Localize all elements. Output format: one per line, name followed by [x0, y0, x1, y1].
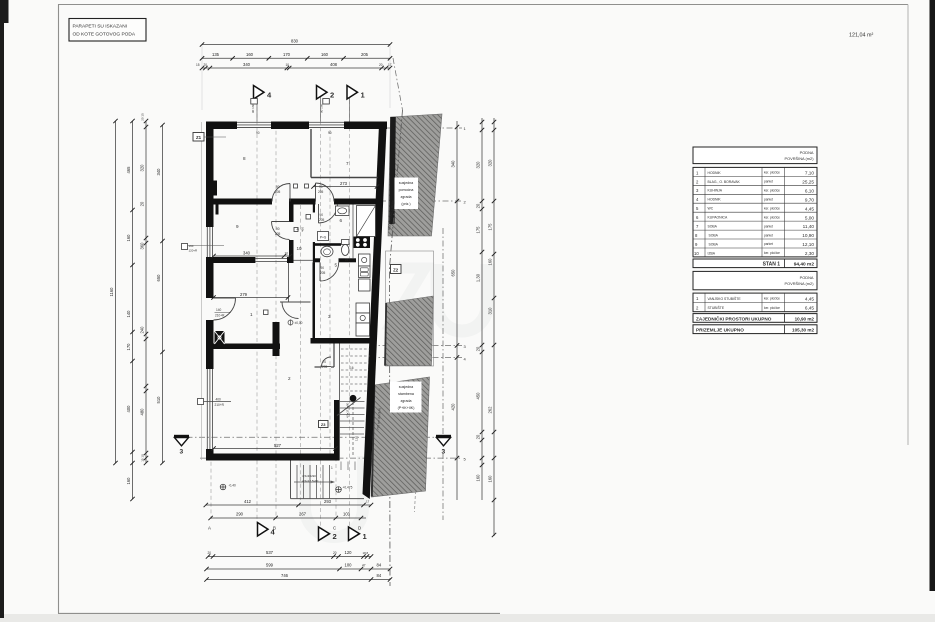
svg-text:(priz.): (priz.): [401, 202, 410, 206]
svg-text:273: 273: [340, 181, 348, 186]
svg-text:175: 175: [476, 226, 481, 234]
svg-text:320: 320: [488, 159, 493, 167]
svg-text:830: 830: [291, 39, 299, 44]
svg-text:Z1: Z1: [196, 135, 202, 140]
svg-text:160: 160: [246, 52, 254, 57]
svg-text:1: 1: [250, 312, 253, 317]
svg-text:4,5x17,5x90: 4,5x17,5x90: [302, 479, 319, 483]
svg-text:4,45: 4,45: [805, 296, 815, 301]
svg-text:PRIZEMLJE UKUPNO: PRIZEMLJE UKUPNO: [696, 328, 744, 333]
svg-text:240: 240: [140, 326, 145, 334]
svg-text:100: 100: [345, 563, 353, 568]
svg-text:650: 650: [451, 269, 456, 277]
svg-text:3: 3: [180, 449, 184, 456]
svg-text:599: 599: [266, 563, 274, 568]
svg-text:POVRŠINA (m2): POVRŠINA (m2): [785, 156, 815, 161]
svg-text:650: 650: [156, 274, 161, 282]
svg-text:20: 20: [476, 203, 481, 208]
svg-text:90: 90: [276, 185, 280, 189]
svg-text:20: 20: [208, 551, 212, 555]
svg-text:3: 3: [442, 449, 446, 456]
svg-text:1,30: 1,30: [476, 273, 481, 282]
svg-text:205: 205: [318, 190, 324, 194]
svg-text:SOBA: SOBA: [709, 234, 719, 238]
svg-text:290: 290: [236, 512, 244, 517]
svg-text:12,10: 12,10: [802, 242, 814, 247]
svg-text:205: 205: [320, 271, 326, 275]
svg-text:420: 420: [451, 403, 456, 411]
svg-text:746: 746: [281, 573, 289, 578]
svg-text:11,40: 11,40: [803, 224, 815, 229]
svg-text:C: C: [333, 526, 336, 531]
svg-text:121,04 m²: 121,04 m²: [849, 33, 873, 39]
svg-text:90 160: 90 160: [251, 103, 255, 113]
svg-text:10,90: 10,90: [802, 233, 814, 238]
svg-text:1: 1: [331, 466, 333, 470]
svg-text:94,40 m2: 94,40 m2: [794, 262, 815, 268]
svg-text:537: 537: [266, 550, 274, 555]
svg-text:SOBA: SOBA: [708, 225, 718, 229]
svg-text:STAN 1: STAN 1: [763, 262, 781, 268]
svg-text:SOBA: SOBA: [709, 242, 719, 246]
svg-text:BLAG., O. BORAVAK: BLAG., O. BORAVAK: [708, 180, 741, 184]
svg-text:PODNA: PODNA: [800, 150, 814, 155]
svg-text:90: 90: [320, 213, 324, 217]
svg-text:293: 293: [324, 499, 332, 504]
svg-text:310: 310: [488, 307, 493, 315]
svg-text:205: 205: [322, 365, 328, 369]
svg-text:zgrada: zgrada: [401, 195, 412, 199]
svg-text:VANJSKO STUBIŠTE: VANJSKO STUBIŠTE: [708, 296, 742, 301]
svg-text:20: 20: [140, 201, 145, 206]
svg-text:340: 340: [156, 168, 161, 176]
svg-text:PARAPETI SU ISKAZANI: PARAPETI SU ISKAZANI: [73, 24, 128, 30]
svg-text:parket: parket: [764, 224, 773, 228]
svg-text:±0,00: ±0,00: [295, 321, 303, 325]
svg-text:KUPAONICA: KUPAONICA: [708, 216, 728, 220]
svg-text:160: 160: [189, 244, 194, 248]
svg-text:4: 4: [297, 227, 300, 232]
svg-text:WC: WC: [708, 207, 714, 211]
svg-text:320: 320: [140, 164, 145, 172]
svg-text:9,70: 9,70: [805, 197, 815, 202]
svg-text:90: 90: [256, 131, 260, 135]
svg-text:160: 160: [488, 475, 493, 483]
svg-text:400: 400: [126, 405, 131, 413]
svg-text:408: 408: [330, 62, 338, 67]
svg-text:103: 103: [343, 512, 351, 517]
svg-text:17: 17: [366, 500, 370, 504]
svg-text:D: D: [358, 526, 361, 531]
svg-text:279: 279: [240, 292, 248, 297]
svg-text:IZBA: IZBA: [708, 251, 716, 255]
svg-text:zgrada: zgrada: [401, 399, 412, 403]
svg-text:6: 6: [340, 218, 343, 223]
svg-text:20 15: 20 15: [141, 113, 145, 121]
svg-text:(P+IK+IIK): (P+IK+IIK): [398, 406, 415, 410]
svg-text:-0,40: -0,40: [229, 484, 236, 488]
svg-text:20: 20: [476, 346, 481, 351]
svg-text:ker. pločice: ker. pločice: [764, 215, 780, 219]
svg-text:parket: parket: [764, 198, 773, 202]
svg-text:POVRŠINA (m2): POVRŠINA (m2): [785, 281, 815, 286]
svg-text:205: 205: [275, 232, 281, 236]
svg-text:205: 205: [319, 218, 325, 222]
svg-text:160: 160: [321, 52, 329, 57]
svg-text:257: 257: [345, 258, 350, 262]
svg-text:5,00: 5,00: [805, 215, 815, 220]
svg-text:412: 412: [244, 499, 252, 504]
svg-text:160: 160: [126, 234, 131, 242]
svg-text:105,30 m2: 105,30 m2: [792, 328, 814, 333]
svg-text:170: 170: [126, 343, 131, 351]
svg-text:parket: parket: [764, 180, 773, 184]
svg-text:OD KOTE GOTOVOG PODA: OD KOTE GOTOVOG PODA: [73, 32, 136, 38]
svg-text:20: 20: [379, 63, 383, 67]
svg-text:20: 20: [333, 551, 337, 555]
svg-text:10: 10: [286, 63, 290, 67]
svg-text:7,10: 7,10: [805, 171, 815, 176]
svg-text:ker. pločice: ker. pločice: [764, 171, 780, 175]
svg-text:ker. pločice: ker. pločice: [764, 306, 780, 310]
svg-text:340: 340: [243, 62, 251, 67]
svg-text:10: 10: [694, 251, 699, 256]
svg-text:HODNIK: HODNIK: [708, 171, 722, 175]
svg-text:262: 262: [488, 406, 493, 414]
svg-text:47: 47: [362, 564, 366, 568]
svg-text:210+R: 210+R: [215, 403, 225, 407]
svg-text:ZAJEDNIČKI PROSTORI UKUPNO: ZAJEDNIČKI PROSTORI UKUPNO: [696, 315, 772, 321]
svg-text:HODNIK: HODNIK: [708, 198, 722, 202]
svg-text:480: 480: [140, 408, 145, 416]
svg-text:4,5x30x90: 4,5x30x90: [302, 474, 316, 478]
svg-text:70: 70: [323, 360, 327, 364]
svg-text:4,45: 4,45: [805, 206, 815, 211]
svg-text:205: 205: [361, 52, 369, 57]
svg-text:90: 90: [319, 185, 323, 189]
svg-text:susjedna: susjedna: [399, 181, 413, 185]
svg-text:10: 10: [297, 246, 303, 251]
svg-text:9: 9: [236, 224, 239, 229]
svg-text:20: 20: [476, 434, 481, 439]
svg-text:ker. pločice: ker. pločice: [764, 206, 780, 210]
svg-text:16: 16: [350, 366, 354, 370]
svg-text:320: 320: [476, 161, 481, 169]
svg-text:120: 120: [355, 436, 359, 441]
svg-text:stambena: stambena: [398, 392, 414, 396]
svg-text:A: A: [208, 526, 211, 531]
svg-text:135: 135: [212, 52, 220, 57]
svg-text:340: 340: [451, 160, 456, 168]
svg-text:pomoćna: pomoćna: [399, 188, 414, 192]
svg-text:527: 527: [274, 443, 282, 448]
svg-text:6,45: 6,45: [805, 306, 815, 311]
svg-text:460: 460: [301, 227, 305, 232]
svg-text:17: 17: [388, 63, 392, 67]
svg-text:ker. pločice: ker. pločice: [764, 251, 780, 255]
svg-text:6,10: 6,10: [805, 188, 815, 193]
svg-text:2,30: 2,30: [805, 251, 815, 256]
svg-text:ker. pločice: ker. pločice: [764, 189, 780, 193]
svg-text:160: 160: [488, 258, 493, 266]
svg-text:KUHINJA: KUHINJA: [708, 189, 723, 193]
svg-text:4,5x17,5x90: 4,5x17,5x90: [346, 402, 350, 418]
svg-text:Z2: Z2: [393, 268, 399, 273]
svg-text:160: 160: [476, 474, 481, 482]
svg-text:STUBIŠTE: STUBIŠTE: [708, 305, 725, 310]
svg-text:510: 510: [156, 396, 161, 404]
svg-text:25,25: 25,25: [802, 180, 814, 185]
svg-text:PODNA: PODNA: [800, 275, 814, 280]
svg-text:340: 340: [243, 250, 251, 255]
svg-text:20: 20: [204, 63, 208, 67]
svg-text:susjedna: susjedna: [399, 385, 413, 389]
svg-text:160: 160: [126, 477, 131, 485]
svg-text:Z3: Z3: [321, 422, 326, 427]
svg-text:175: 175: [488, 223, 493, 231]
svg-text:400: 400: [216, 398, 222, 402]
svg-text:205: 205: [275, 190, 281, 194]
svg-text:P+S: P+S: [320, 236, 327, 240]
svg-text:8: 8: [243, 156, 246, 161]
svg-text:120: 120: [345, 550, 353, 555]
svg-text:360: 360: [140, 242, 145, 250]
svg-text:267: 267: [299, 512, 307, 517]
svg-text:2: 2: [288, 376, 291, 381]
svg-text:5: 5: [335, 263, 338, 268]
svg-text:84: 84: [377, 563, 382, 568]
svg-text:2: 2: [330, 91, 334, 100]
svg-text:15 10: 15 10: [141, 454, 145, 462]
svg-text:10,90 m2: 10,90 m2: [795, 316, 815, 321]
svg-text:170: 170: [283, 52, 291, 57]
svg-text:140: 140: [126, 310, 131, 318]
svg-text:ker. pločice: ker. pločice: [764, 297, 780, 301]
svg-text:450: 450: [476, 392, 481, 400]
svg-text:parket: parket: [764, 242, 773, 246]
svg-text:120+R: 120+R: [189, 249, 198, 253]
svg-text:parket: parket: [764, 233, 773, 237]
svg-text:210+R: 210+R: [215, 314, 225, 318]
svg-text:3: 3: [328, 314, 331, 319]
svg-text:90: 90: [276, 227, 280, 231]
svg-text:1160: 1160: [109, 287, 114, 297]
svg-text:+0,475: +0,475: [343, 486, 353, 490]
svg-text:90: 90: [321, 266, 325, 270]
svg-text:7: 7: [346, 161, 349, 166]
svg-text:90: 90: [328, 131, 332, 135]
svg-text:18,8: 18,8: [363, 551, 369, 555]
svg-text:2: 2: [333, 532, 337, 541]
svg-text:465: 465: [126, 166, 131, 174]
svg-text:84: 84: [377, 573, 382, 578]
svg-text:15: 15: [196, 63, 200, 67]
svg-text:140: 140: [216, 308, 222, 312]
svg-text:10: 10: [285, 251, 289, 255]
